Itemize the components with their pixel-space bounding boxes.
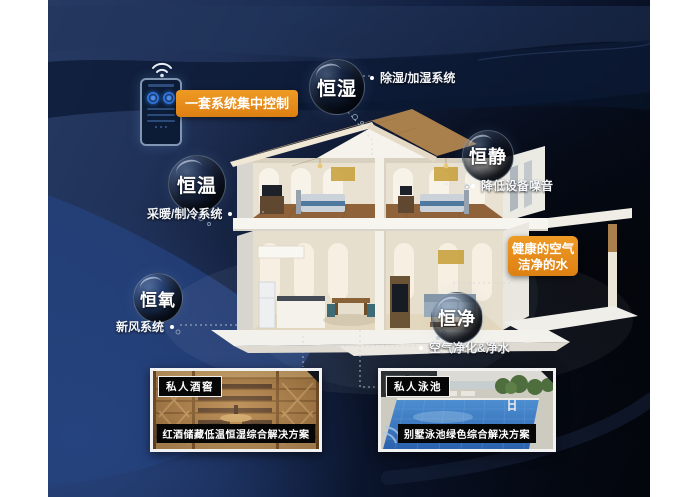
infographic-page: 一套系统集中控制 健康的空气 洁净的水 恒湿 恒静 恒温 恒氧 恒净	[0, 0, 700, 497]
private-pool-caption: 别墅泳池绿色综合解决方案	[398, 424, 536, 443]
phone-row	[147, 114, 175, 116]
system-label-text: 空气净化&净水	[429, 339, 510, 356]
benefit-callout: 健康的空气 洁净的水	[508, 236, 578, 276]
wifi-icon	[149, 56, 175, 78]
system-label-text: 降低设备噪音	[481, 177, 553, 194]
corner-fold	[541, 371, 553, 383]
central-control-callout: 一套系统集中控制	[176, 90, 298, 117]
label-air-water-purification: 空气净化&净水	[419, 339, 510, 356]
private-pool-tag: 私人泳池	[386, 376, 450, 397]
infographic-canvas: 一套系统集中控制 健康的空气 洁净的水 恒湿 恒静 恒温 恒氧 恒净	[48, 0, 650, 497]
phone-status-bar	[148, 84, 174, 87]
phone-row	[147, 120, 175, 122]
bullet-dot	[228, 212, 232, 216]
central-control-label: 一套系统集中控制	[185, 96, 289, 111]
phone-nav-dots	[142, 126, 180, 128]
label-dehumidify-system: 除湿/加湿系统	[370, 69, 455, 86]
system-label-text: 除湿/加湿系统	[380, 69, 455, 86]
system-label-text: 新风系统	[116, 318, 164, 335]
label-heating-cooling-system: 采暖/制冷系统	[147, 205, 232, 222]
tag-text: 私人酒窖	[166, 381, 214, 393]
bubble-constant-purity: 恒净	[431, 292, 483, 344]
bubble-constant-quiet: 恒静	[462, 130, 514, 182]
phone-dials	[142, 92, 180, 104]
phone-row	[147, 108, 175, 110]
bullet-dot	[170, 325, 174, 329]
caption-text: 别墅泳池绿色综合解决方案	[404, 430, 530, 441]
bubble-constant-oxygen: 恒氧	[133, 273, 183, 323]
bullet-dot	[370, 76, 374, 80]
label-noise-reduction: 降低设备噪音	[471, 177, 553, 194]
bullet-dot	[419, 346, 423, 350]
benefit-line-2: 洁净的水	[508, 257, 578, 273]
benefit-line-1: 健康的空气	[508, 241, 578, 257]
wine-cellar-caption: 红酒储藏低温恒湿综合解决方案	[157, 424, 316, 443]
wine-cellar-tag: 私人酒窖	[158, 376, 222, 397]
corner-fold	[307, 371, 319, 383]
system-label-text: 采暖/制冷系统	[147, 205, 222, 222]
bullet-dot	[471, 184, 475, 188]
dial-icon	[163, 92, 175, 104]
label-fresh-air-system: 新风系统	[116, 318, 174, 335]
card-wine-cellar: 私人酒窖 红酒储藏低温恒湿综合解决方案	[150, 368, 322, 452]
tag-text: 私人泳池	[394, 381, 442, 393]
card-private-pool: 私人泳池 别墅泳池绿色综合解决方案	[378, 368, 556, 452]
dial-icon	[147, 92, 159, 104]
bubble-constant-humidity: 恒湿	[309, 59, 365, 115]
caption-text: 红酒储藏低温恒湿综合解决方案	[163, 430, 310, 441]
